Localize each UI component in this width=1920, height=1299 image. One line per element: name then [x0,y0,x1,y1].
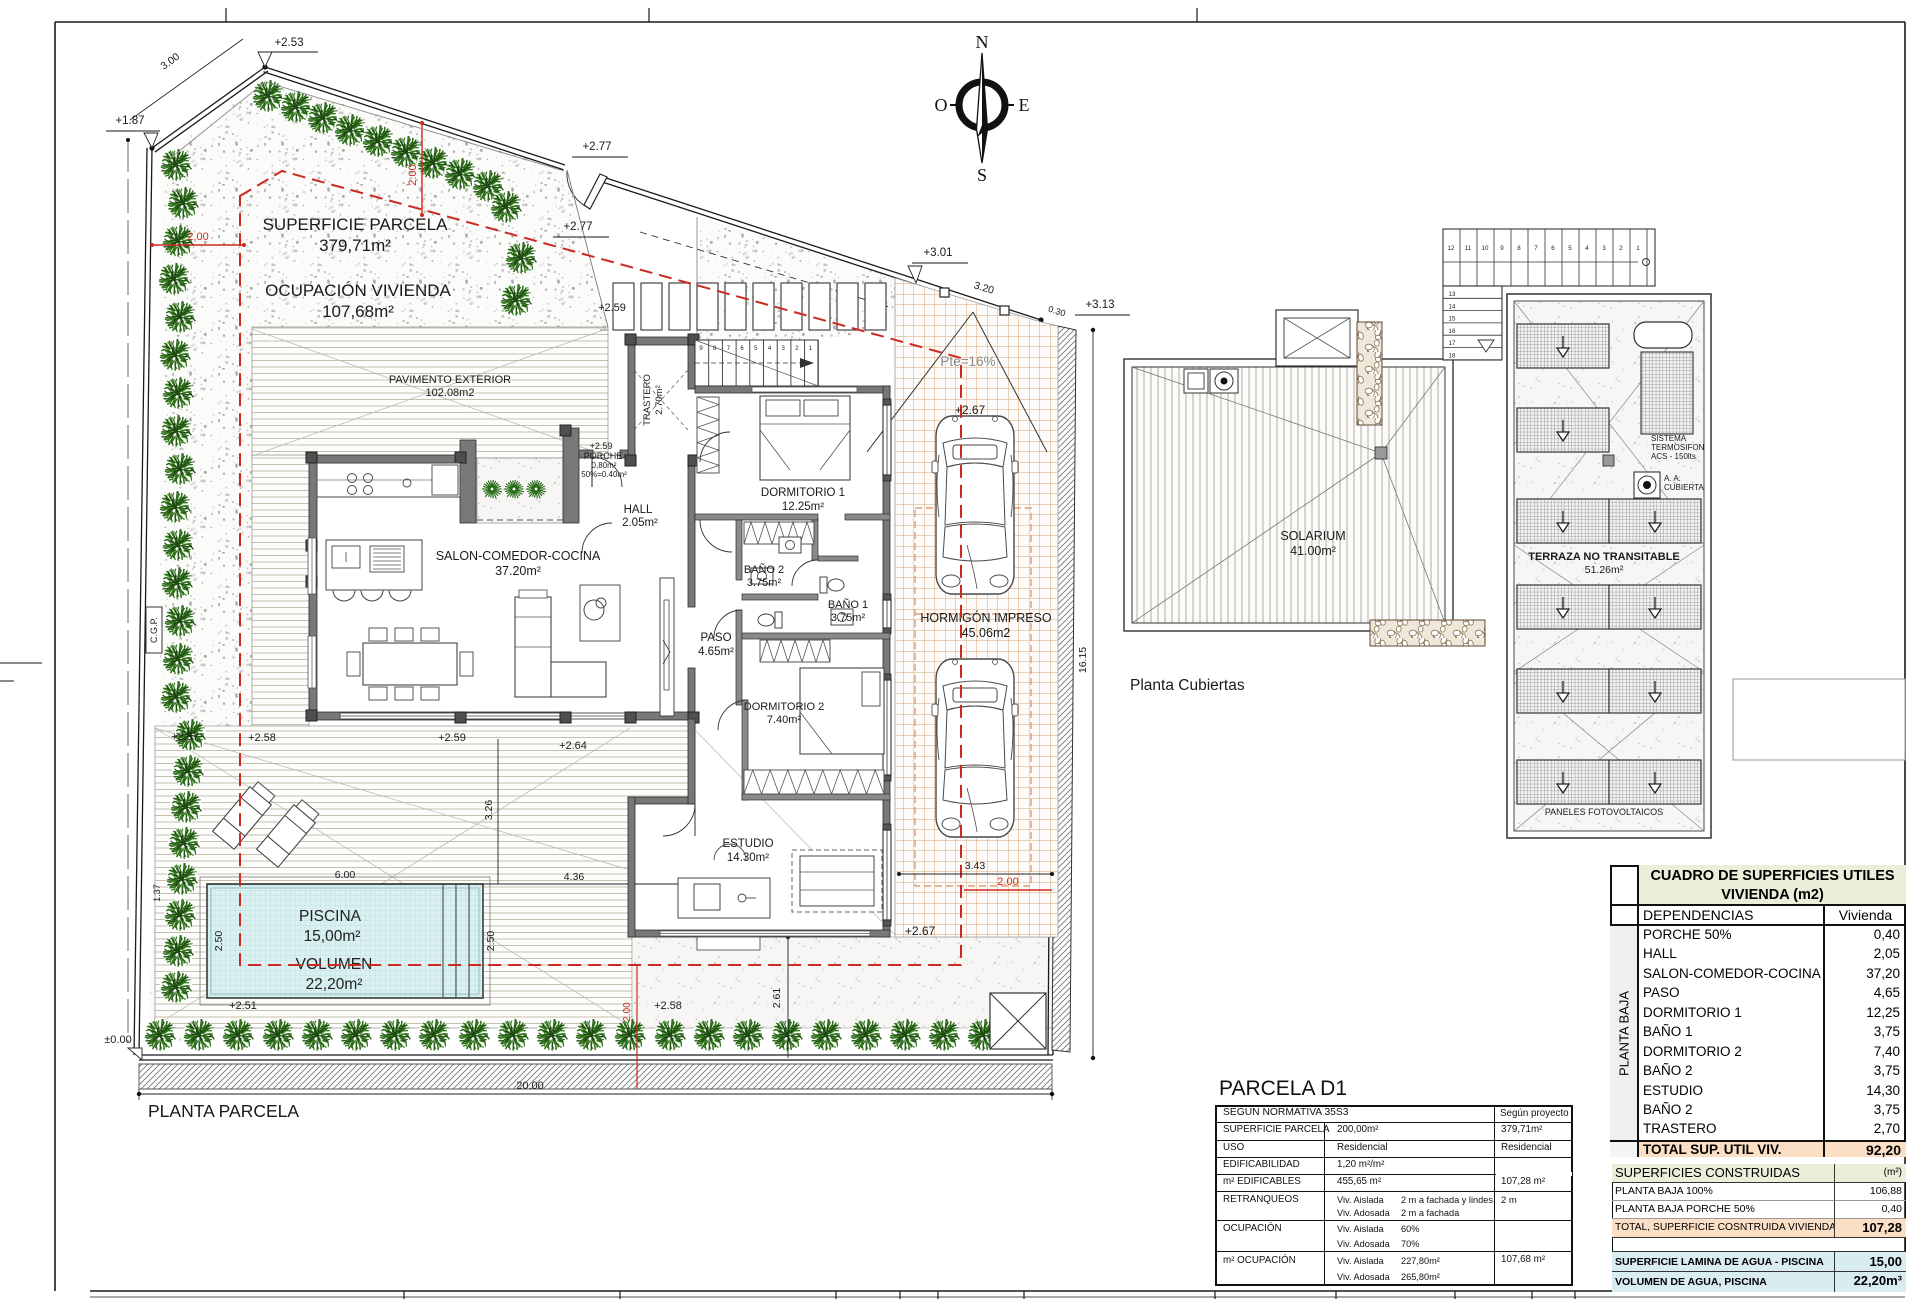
svg-text:5: 5 [1568,245,1572,252]
svg-text:HORMIGÓN IMPRESO: HORMIGÓN IMPRESO [920,610,1052,625]
svg-text:+2.58: +2.58 [654,1000,682,1012]
svg-text:PASO: PASO [700,632,731,644]
svg-text:6.00: 6.00 [335,869,356,881]
svg-text:ACS - 150lts: ACS - 150lts [1651,452,1696,461]
svg-text:11: 11 [1465,245,1472,252]
svg-text:HALL: HALL [624,504,653,516]
svg-text:14.30m²: 14.30m² [727,852,769,864]
svg-text:15: 15 [1449,316,1456,323]
svg-text:2: 2 [1619,245,1623,252]
svg-text:Planta Cubiertas: Planta Cubiertas [1130,677,1245,694]
svg-text:CUBIERTA: CUBIERTA [1664,483,1704,492]
svg-text:379,71m²: 379,71m² [319,236,391,255]
svg-text:107,68m²: 107,68m² [322,302,394,321]
svg-text:OCUPACIÓN VIVIENDA: OCUPACIÓN VIVIENDA [265,281,451,300]
svg-text:S: S [977,165,987,185]
svg-text:+2.59: +2.59 [590,441,613,451]
svg-text:2.70m²: 2.70m² [654,385,665,415]
svg-text:+2.53: +2.53 [274,37,303,49]
svg-text:2.05m²: 2.05m² [622,517,658,529]
svg-text:7: 7 [1534,245,1538,252]
svg-text:+2.67: +2.67 [905,924,936,938]
svg-text:+1.87: +1.87 [115,115,144,127]
svg-text:+2.77: +2.77 [582,141,611,153]
svg-text:22,20m²: 22,20m² [306,976,363,993]
svg-text:3.26: 3.26 [483,800,495,821]
svg-text:16.15: 16.15 [1077,647,1089,673]
svg-text:N: N [976,32,989,52]
svg-text:3.43: 3.43 [965,860,986,872]
svg-text:+2.59: +2.59 [598,302,626,314]
svg-text:+2.57: +2.57 [171,731,199,743]
svg-text:2.00: 2.00 [622,1002,633,1022]
svg-text:SOLARIUM: SOLARIUM [1280,529,1345,543]
svg-text:+2.58: +2.58 [248,732,276,744]
svg-text:O: O [935,95,948,115]
svg-text:BAÑO 2: BAÑO 2 [744,563,784,576]
svg-text:16: 16 [1449,328,1456,335]
svg-text:SUPERFICIE PARCELA: SUPERFICIE PARCELA [263,215,449,234]
svg-text:BAÑO 1: BAÑO 1 [828,598,868,611]
svg-text:PANELES FOTOVOLTAICOS: PANELES FOTOVOLTAICOS [1545,807,1663,817]
svg-text:+2.77: +2.77 [563,221,592,233]
svg-text:PLANTA PARCELA: PLANTA PARCELA [148,1101,299,1121]
svg-text:17: 17 [1449,340,1456,347]
svg-text:4.65m²: 4.65m² [698,646,734,658]
svg-text:51.26m²: 51.26m² [1585,564,1624,576]
svg-text:+3.13: +3.13 [1085,299,1114,311]
svg-text:6: 6 [1551,245,1555,252]
svg-text:C.G.P.: C.G.P. [149,617,159,643]
svg-text:A. A.: A. A. [1664,474,1681,483]
svg-text:2.00: 2.00 [187,231,208,243]
svg-text:PISCINA: PISCINA [299,908,362,925]
svg-text:12.25m²: 12.25m² [782,501,824,513]
svg-text:+2.59: +2.59 [438,732,466,744]
svg-text:2.50: 2.50 [213,931,225,952]
svg-text:2.50: 2.50 [485,931,497,952]
svg-text:13: 13 [1449,291,1456,298]
svg-text:18: 18 [1449,353,1456,360]
svg-text:3.75m²: 3.75m² [831,612,866,624]
svg-text:PAVIMENTO EXTERIOR: PAVIMENTO EXTERIOR [389,374,511,386]
svg-text:15,00m²: 15,00m² [304,928,361,945]
svg-text:+3.01: +3.01 [923,247,952,259]
svg-text:10: 10 [1482,245,1489,252]
svg-text:DORMITORIO 2: DORMITORIO 2 [744,701,824,713]
svg-text:TERMOSIFON: TERMOSIFON [1651,443,1705,452]
svg-text:4: 4 [1585,245,1589,252]
svg-text:7.40m²: 7.40m² [767,714,802,726]
svg-text:+2.51: +2.51 [229,1000,257,1012]
svg-text:12: 12 [1448,245,1455,252]
svg-text:8: 8 [1517,245,1521,252]
svg-text:SISTEMA: SISTEMA [1651,434,1687,443]
svg-text:9: 9 [1500,245,1504,252]
svg-text:102.08m2: 102.08m2 [426,387,475,399]
svg-text:TRASTERO: TRASTERO [642,374,653,426]
svg-text:4.36: 4.36 [564,871,585,883]
svg-text:TERRAZA NO TRANSITABLE: TERRAZA NO TRANSITABLE [1528,551,1680,563]
svg-text:Pte=16%: Pte=16% [940,354,995,369]
svg-text:SALON-COMEDOR-COCINA: SALON-COMEDOR-COCINA [436,549,601,563]
svg-text:3.75m²: 3.75m² [747,577,782,589]
svg-text:PORCHE: PORCHE [584,451,623,461]
svg-text:20.00: 20.00 [516,1080,544,1092]
svg-text:3: 3 [1602,245,1606,252]
svg-text:2.00: 2.00 [407,164,419,185]
svg-text:1: 1 [1636,245,1640,252]
svg-text:37.20m²: 37.20m² [495,564,541,578]
svg-text:14: 14 [1449,303,1456,310]
svg-text:2.61: 2.61 [771,988,783,1009]
svg-text:E: E [1019,95,1030,115]
svg-text:+2.67: +2.67 [955,403,986,417]
svg-text:1.37: 1.37 [152,884,162,902]
svg-text:DORMITORIO 1: DORMITORIO 1 [761,487,845,499]
svg-text:+2.64: +2.64 [559,740,587,752]
svg-text:45.06m2: 45.06m2 [962,626,1011,640]
svg-text:41.00m²: 41.00m² [1290,544,1336,558]
svg-text:2.00: 2.00 [997,876,1018,888]
